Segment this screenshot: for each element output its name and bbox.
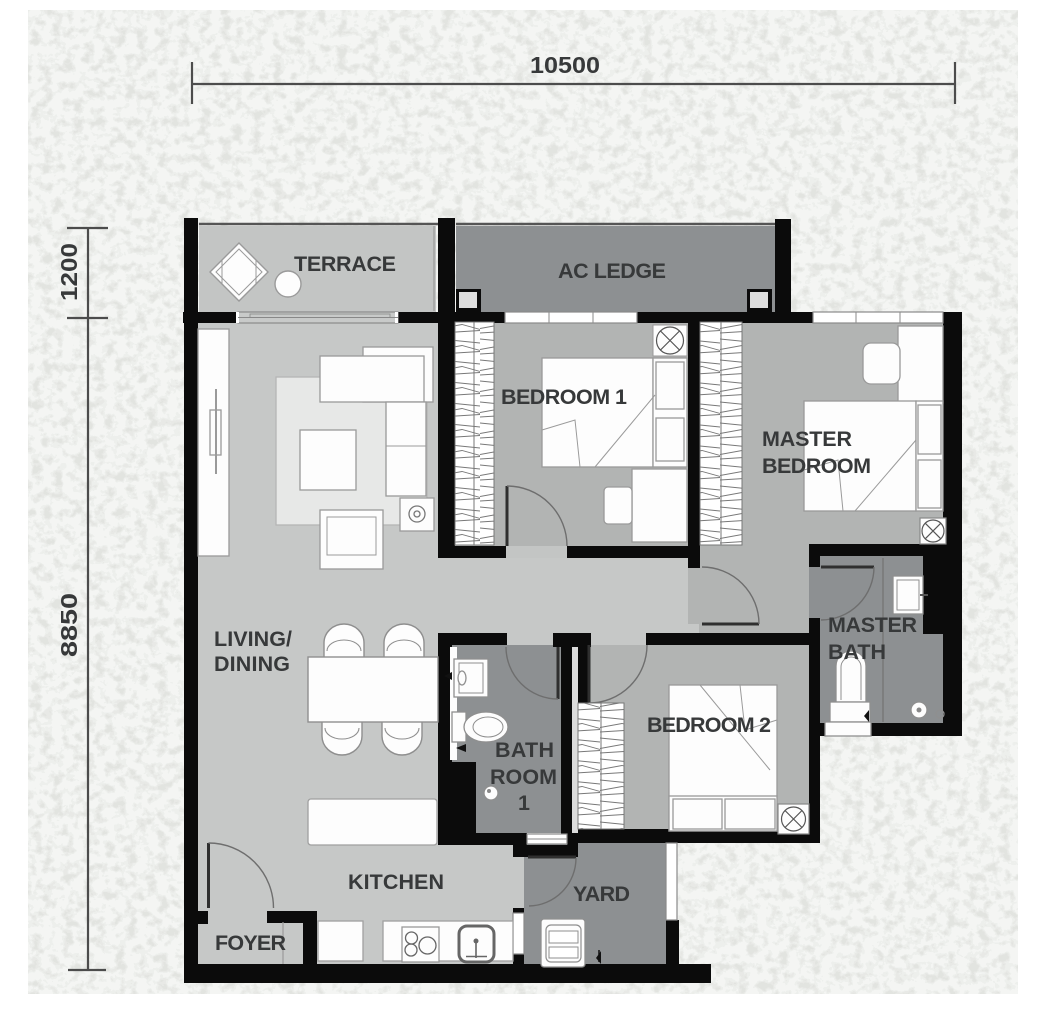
svg-text:ROOM: ROOM [490,765,557,789]
svg-text:BEDROOM 1: BEDROOM 1 [501,385,627,409]
svg-text:DINING: DINING [214,652,290,676]
svg-text:1200: 1200 [56,243,82,301]
svg-text:KITCHEN: KITCHEN [348,870,444,894]
svg-text:BEDROOM: BEDROOM [762,454,871,478]
svg-text:BATH: BATH [495,738,554,762]
svg-text:BATH: BATH [828,640,886,664]
svg-text:TERRACE: TERRACE [294,252,396,276]
svg-text:8850: 8850 [56,593,82,657]
svg-text:LIVING/: LIVING/ [214,627,292,651]
svg-text:YARD: YARD [573,882,630,906]
svg-text:FOYER: FOYER [215,931,286,955]
svg-text:MASTER: MASTER [762,427,852,451]
svg-text:10500: 10500 [530,52,600,78]
svg-text:MASTER: MASTER [828,613,917,637]
svg-text:1: 1 [518,791,530,815]
svg-text:AC LEDGE: AC LEDGE [558,259,666,283]
svg-text:BEDROOM 2: BEDROOM 2 [647,713,771,737]
